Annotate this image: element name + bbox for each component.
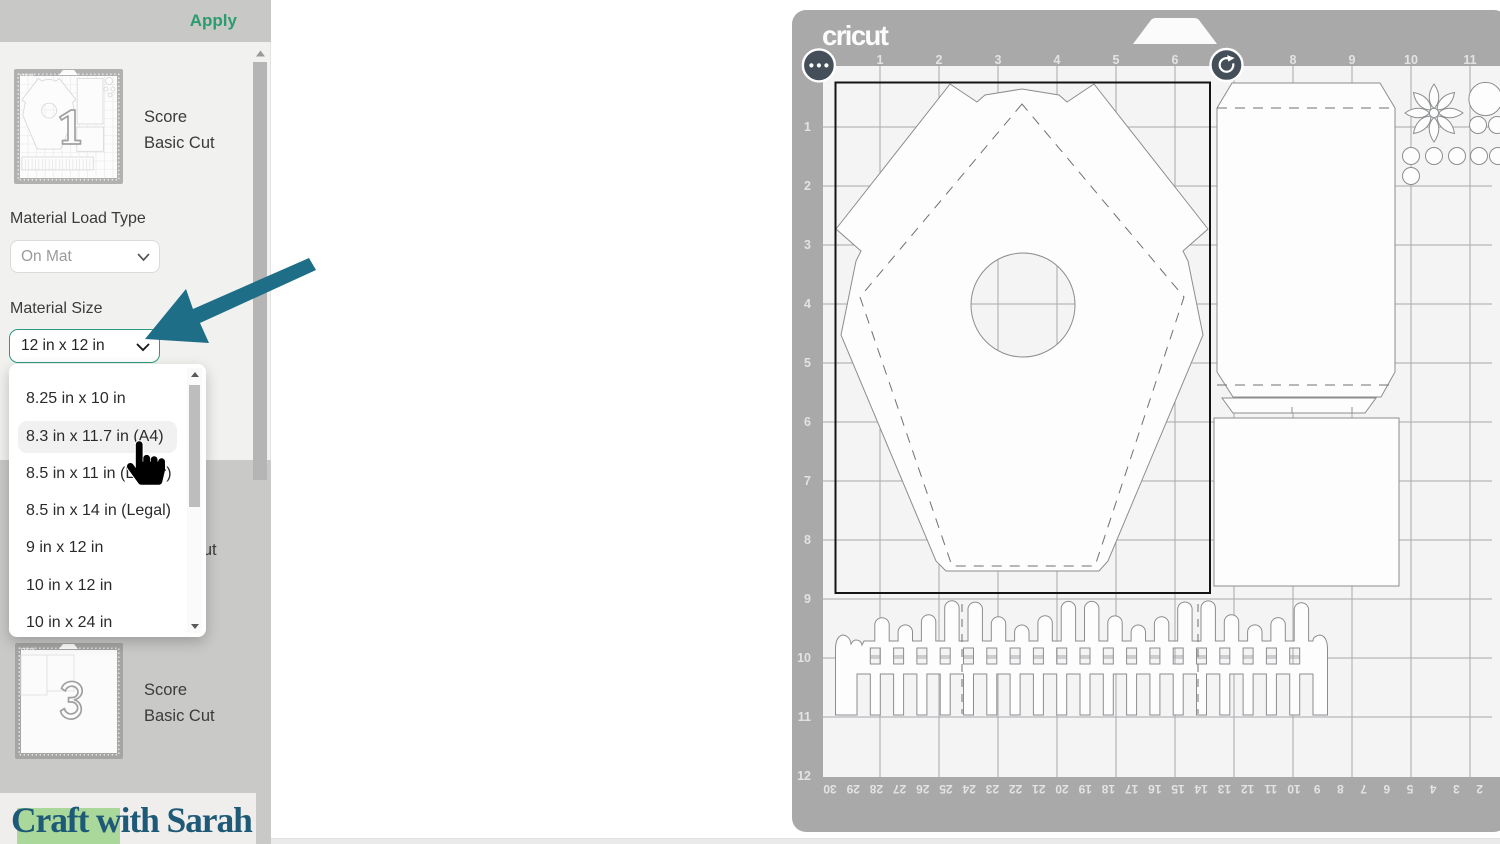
svg-text:2: 2 [804, 179, 811, 193]
svg-text:3: 3 [1453, 782, 1460, 796]
svg-text:18: 18 [1101, 782, 1115, 796]
svg-text:30: 30 [823, 782, 837, 796]
svg-text:20: 20 [1055, 782, 1069, 796]
svg-text:12: 12 [797, 769, 811, 783]
svg-text:26: 26 [916, 782, 930, 796]
svg-text:10: 10 [797, 651, 811, 665]
svg-text:6: 6 [1172, 53, 1179, 67]
svg-text:16: 16 [1148, 782, 1162, 796]
svg-text:19: 19 [1078, 782, 1092, 796]
svg-text:4: 4 [1054, 53, 1061, 67]
svg-text:3: 3 [995, 53, 1002, 67]
svg-text:14: 14 [1194, 782, 1208, 796]
svg-text:cricut: cricut [822, 20, 889, 51]
svg-text:4: 4 [1430, 782, 1437, 796]
svg-text:28: 28 [869, 782, 883, 796]
svg-text:15: 15 [1171, 782, 1185, 796]
svg-text:9: 9 [1349, 53, 1356, 67]
svg-text:2: 2 [1476, 782, 1483, 796]
svg-text:6: 6 [1383, 782, 1390, 796]
svg-text:6: 6 [804, 415, 811, 429]
svg-text:10: 10 [1287, 782, 1301, 796]
svg-text:22: 22 [1009, 782, 1023, 796]
svg-text:10: 10 [1404, 53, 1418, 67]
svg-text:11: 11 [1264, 782, 1277, 796]
svg-text:5: 5 [1113, 53, 1120, 67]
svg-text:13: 13 [1217, 782, 1231, 796]
svg-text:8: 8 [1290, 53, 1297, 67]
svg-text:24: 24 [962, 782, 976, 796]
svg-text:5: 5 [1406, 782, 1413, 796]
svg-text:9: 9 [1314, 782, 1321, 796]
svg-text:7: 7 [804, 474, 811, 488]
svg-text:1: 1 [877, 53, 884, 67]
svg-text:1: 1 [804, 120, 811, 134]
svg-text:4: 4 [804, 297, 811, 311]
svg-text:27: 27 [893, 782, 907, 796]
svg-text:25: 25 [939, 782, 953, 796]
svg-text:11: 11 [1463, 53, 1476, 67]
svg-text:23: 23 [985, 782, 999, 796]
svg-text:8: 8 [804, 533, 811, 547]
svg-text:21: 21 [1032, 782, 1046, 796]
svg-text:8: 8 [1337, 782, 1344, 796]
svg-text:3: 3 [804, 238, 811, 252]
svg-text:12: 12 [1241, 782, 1255, 796]
svg-text:11: 11 [798, 710, 811, 724]
svg-text:29: 29 [846, 782, 860, 796]
svg-text:9: 9 [804, 592, 811, 606]
svg-text:2: 2 [936, 53, 943, 67]
svg-text:5: 5 [804, 356, 811, 370]
svg-text:7: 7 [1360, 782, 1367, 796]
svg-text:17: 17 [1125, 782, 1139, 796]
